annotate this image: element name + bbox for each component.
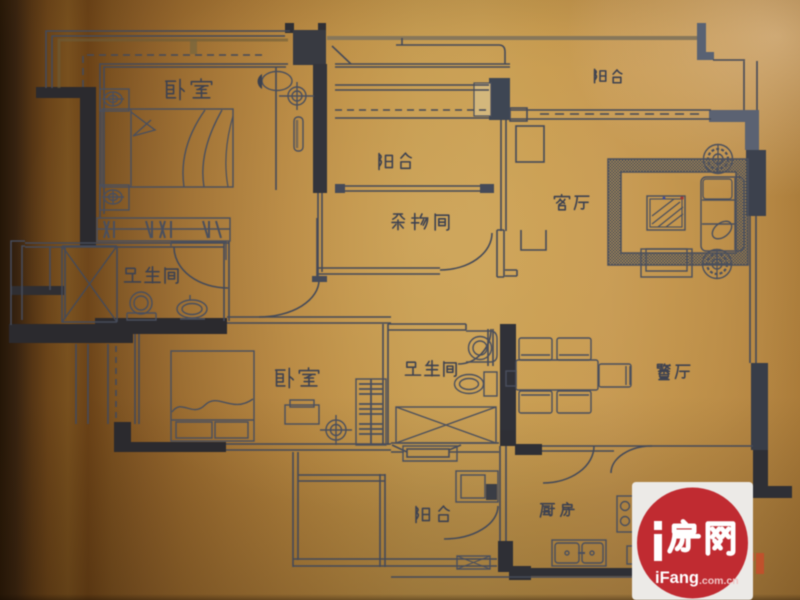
svg-text:iFang: iFang xyxy=(655,569,699,587)
svg-text:.com.cn: .com.cn xyxy=(699,575,739,587)
